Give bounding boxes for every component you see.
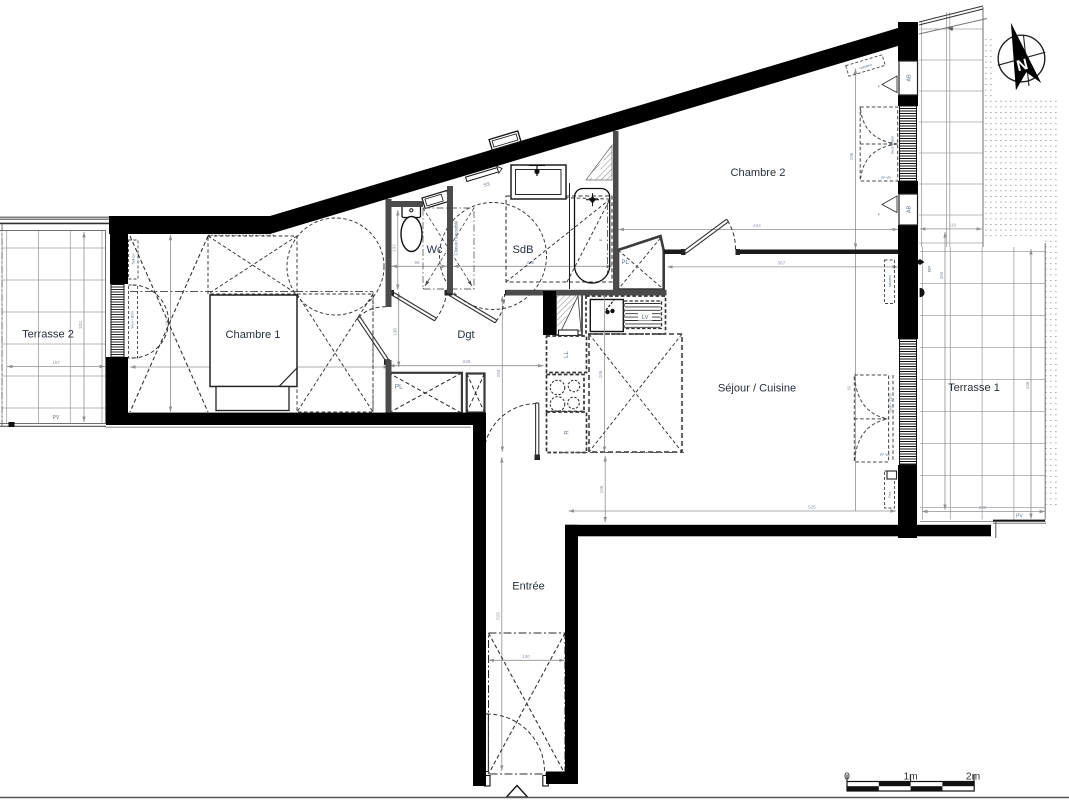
svg-text:444: 444 (753, 223, 761, 228)
svg-text:Fen: Fen (888, 492, 892, 498)
svg-text:520: 520 (496, 612, 501, 620)
svg-text:525: 525 (808, 505, 816, 510)
svg-text:RP: RP (927, 266, 932, 272)
svg-text:PF VR: PF VR (880, 453, 890, 457)
svg-text:132: 132 (392, 244, 397, 252)
svg-text:Chambre 1: Chambre 1 (226, 329, 281, 341)
svg-text:350: 350 (939, 271, 944, 279)
svg-text:Wc: Wc (426, 244, 442, 256)
svg-text:AB: AB (907, 206, 913, 214)
svg-text:157: 157 (52, 360, 60, 365)
svg-text:367: 367 (778, 260, 786, 265)
svg-text:245: 245 (463, 359, 471, 364)
svg-text:205: 205 (598, 370, 603, 378)
svg-text:Tableau: Tableau (132, 253, 136, 264)
svg-text:96: 96 (414, 260, 420, 265)
svg-text:Seuil + Bûm: Seuil + Bûm (131, 311, 135, 329)
svg-text:Cloison amovible: Cloison amovible (454, 220, 459, 255)
svg-text:PF VR: PF VR (881, 176, 891, 180)
svg-text:PV: PV (1016, 514, 1023, 520)
svg-text:SdB: SdB (513, 244, 534, 256)
svg-text:Seuil + Bûm: Seuil + Bûm (891, 136, 895, 155)
svg-text:110: 110 (949, 222, 957, 227)
svg-text:radiateur: radiateur (888, 274, 892, 288)
svg-text:E: E (598, 238, 603, 241)
svg-text:296: 296 (849, 152, 854, 160)
svg-text:LL: LL (564, 351, 570, 358)
svg-text:254: 254 (496, 369, 501, 377)
svg-text:LV: LV (642, 315, 649, 321)
svg-text:AB: AB (907, 74, 913, 82)
svg-text:Séjour / Cuisine: Séjour / Cuisine (718, 383, 796, 395)
svg-text:138: 138 (393, 328, 398, 336)
svg-text:0: 0 (844, 772, 850, 783)
svg-text:2m: 2m (966, 772, 980, 783)
svg-text:436: 436 (1025, 381, 1030, 389)
svg-text:Chambre 2: Chambre 2 (731, 167, 786, 179)
svg-text:320: 320 (78, 321, 83, 329)
svg-text:PL: PL (395, 384, 403, 391)
svg-text:PV: PV (53, 415, 60, 421)
svg-text:Seuil + 15cm: Seuil + 15cm (889, 393, 893, 412)
svg-text:Dgt: Dgt (457, 329, 474, 341)
svg-text:130: 130 (522, 654, 530, 659)
svg-text:106: 106 (599, 485, 604, 493)
svg-text:1m: 1m (903, 772, 917, 783)
svg-text:Entrée: Entrée (512, 581, 544, 593)
svg-text:60: 60 (847, 385, 852, 390)
svg-text:PL: PL (622, 260, 630, 266)
svg-text:Terrasse 1: Terrasse 1 (948, 382, 1000, 394)
svg-text:R: R (565, 430, 571, 435)
svg-text:Terrasse 2: Terrasse 2 (22, 329, 74, 341)
svg-text:200: 200 (979, 505, 987, 510)
